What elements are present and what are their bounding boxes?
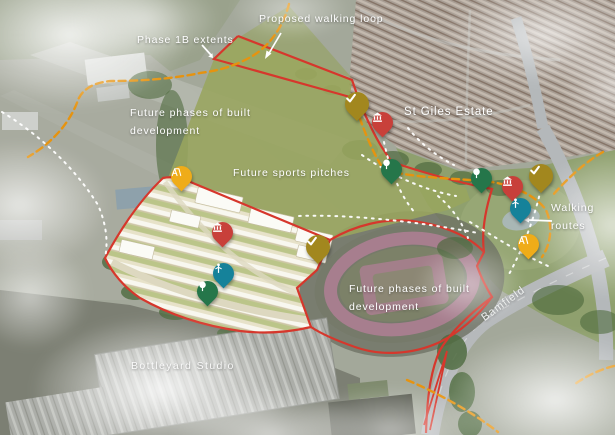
tree-icon [197, 281, 218, 302]
civic-building-icon [372, 112, 393, 133]
play-area-icon [171, 166, 192, 187]
masterplan-map: Proposed walking loop Phase 1B extents F… [0, 0, 615, 435]
signpost-icon [510, 198, 531, 219]
signpost-pin [505, 193, 535, 223]
play-area-icon [518, 234, 539, 255]
play-area-pin [513, 229, 543, 259]
civic-building-icon [212, 222, 233, 243]
checkmark-icon [306, 235, 330, 259]
civic-building-pin [207, 217, 237, 247]
civic-building-pin [367, 107, 397, 137]
play-area-pin [166, 161, 196, 191]
tree-pin [376, 154, 406, 184]
tree-pin [192, 276, 222, 306]
checkmark-pin [340, 87, 374, 121]
checkmark-pin [301, 230, 335, 264]
checkmark-pin [524, 159, 558, 193]
civic-building-pin [497, 171, 527, 201]
tree-icon [381, 159, 402, 180]
map-pins-layer [0, 0, 615, 435]
checkmark-icon [345, 92, 369, 116]
tree-pin [466, 163, 496, 193]
civic-building-icon [502, 176, 523, 197]
tree-icon [471, 168, 492, 189]
checkmark-icon [529, 164, 553, 188]
